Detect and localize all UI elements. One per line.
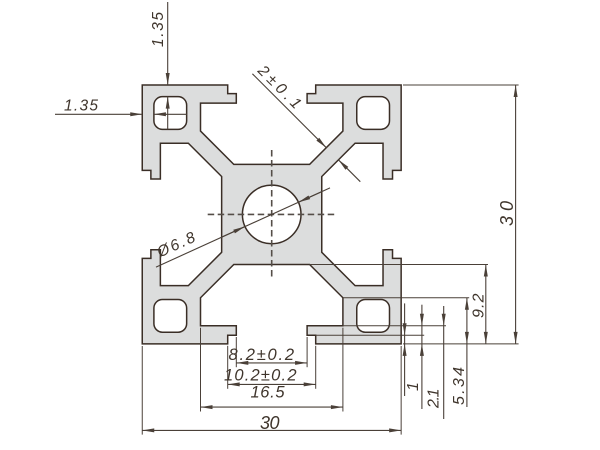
svg-text:8.2±0.2: 8.2±0.2 [229,346,295,364]
svg-text:5.34: 5.34 [451,367,468,405]
svg-text:2.1: 2.1 [426,389,443,410]
svg-text:1.35: 1.35 [64,98,98,115]
svg-text:30: 30 [260,413,280,433]
svg-text:16.5: 16.5 [251,384,286,402]
svg-text:Ø6.8: Ø6.8 [154,229,199,262]
svg-text:1: 1 [405,382,422,391]
svg-text:2±0.1: 2±0.1 [253,62,304,113]
svg-text:10.2±0.2: 10.2±0.2 [224,367,297,385]
svg-text:1.35: 1.35 [150,12,167,47]
svg-text:30: 30 [497,201,517,226]
svg-text:9.2: 9.2 [471,293,488,318]
